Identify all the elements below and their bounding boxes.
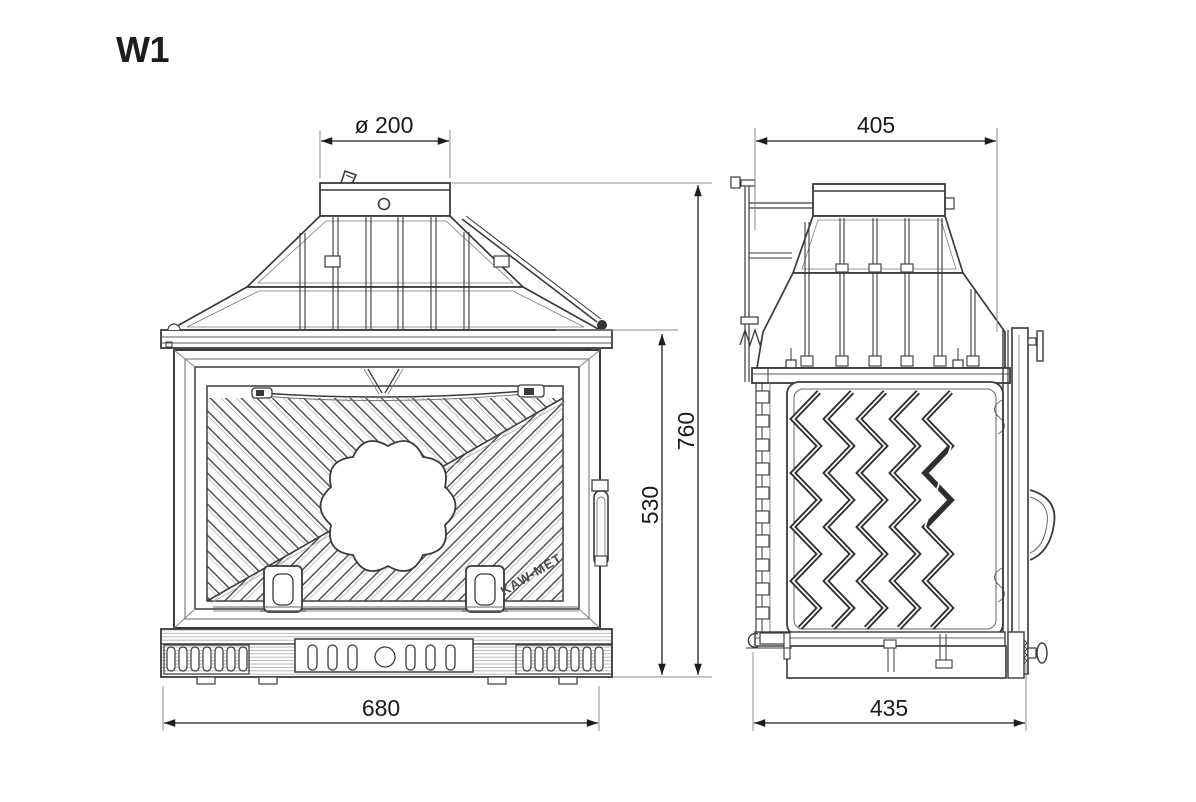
air-control-panel: [295, 639, 473, 672]
fireplace-dimension-drawing: W1: [0, 0, 1196, 802]
top-plate-side: [752, 368, 1010, 383]
feet: [197, 677, 577, 684]
side-panel: [787, 382, 1005, 636]
door-glass: KAW-MET: [207, 369, 579, 612]
log-retainer-clip-left: [260, 566, 306, 612]
dim-overall-width: 680: [163, 686, 599, 731]
decorative-flame-blob: [321, 441, 456, 571]
dim-label-door-height: 530: [637, 486, 663, 524]
right-grille: [523, 647, 603, 671]
page-title: W1: [116, 29, 169, 70]
dim-flue-diameter: ø 200: [320, 112, 450, 178]
latch-knob-side: [1028, 331, 1043, 361]
dim-door-height: 530: [637, 334, 663, 675]
base-plinth: [161, 629, 612, 684]
front-view: KAW-MET: [161, 171, 612, 684]
dim-label-base-depth: 435: [870, 695, 908, 721]
dim-label-overall-width: 680: [362, 695, 400, 721]
dim-label-top-depth: 405: [857, 112, 895, 138]
dim-label-flue-diameter: ø 200: [355, 112, 414, 138]
flue-collar-side: [813, 184, 954, 216]
left-grille: [167, 647, 247, 671]
technical-drawing-page: W1: [0, 0, 1196, 802]
side-view: [731, 177, 1055, 678]
dim-overall-height: 760: [673, 185, 699, 675]
hood-side: [757, 216, 1005, 370]
flue-collar: [320, 171, 450, 216]
dim-label-overall-height: 760: [673, 412, 699, 450]
base-side: [746, 632, 1006, 678]
back-edge-ribs: [756, 383, 770, 632]
air-control-knob: [375, 647, 395, 667]
door-handle-side: [1030, 490, 1055, 560]
